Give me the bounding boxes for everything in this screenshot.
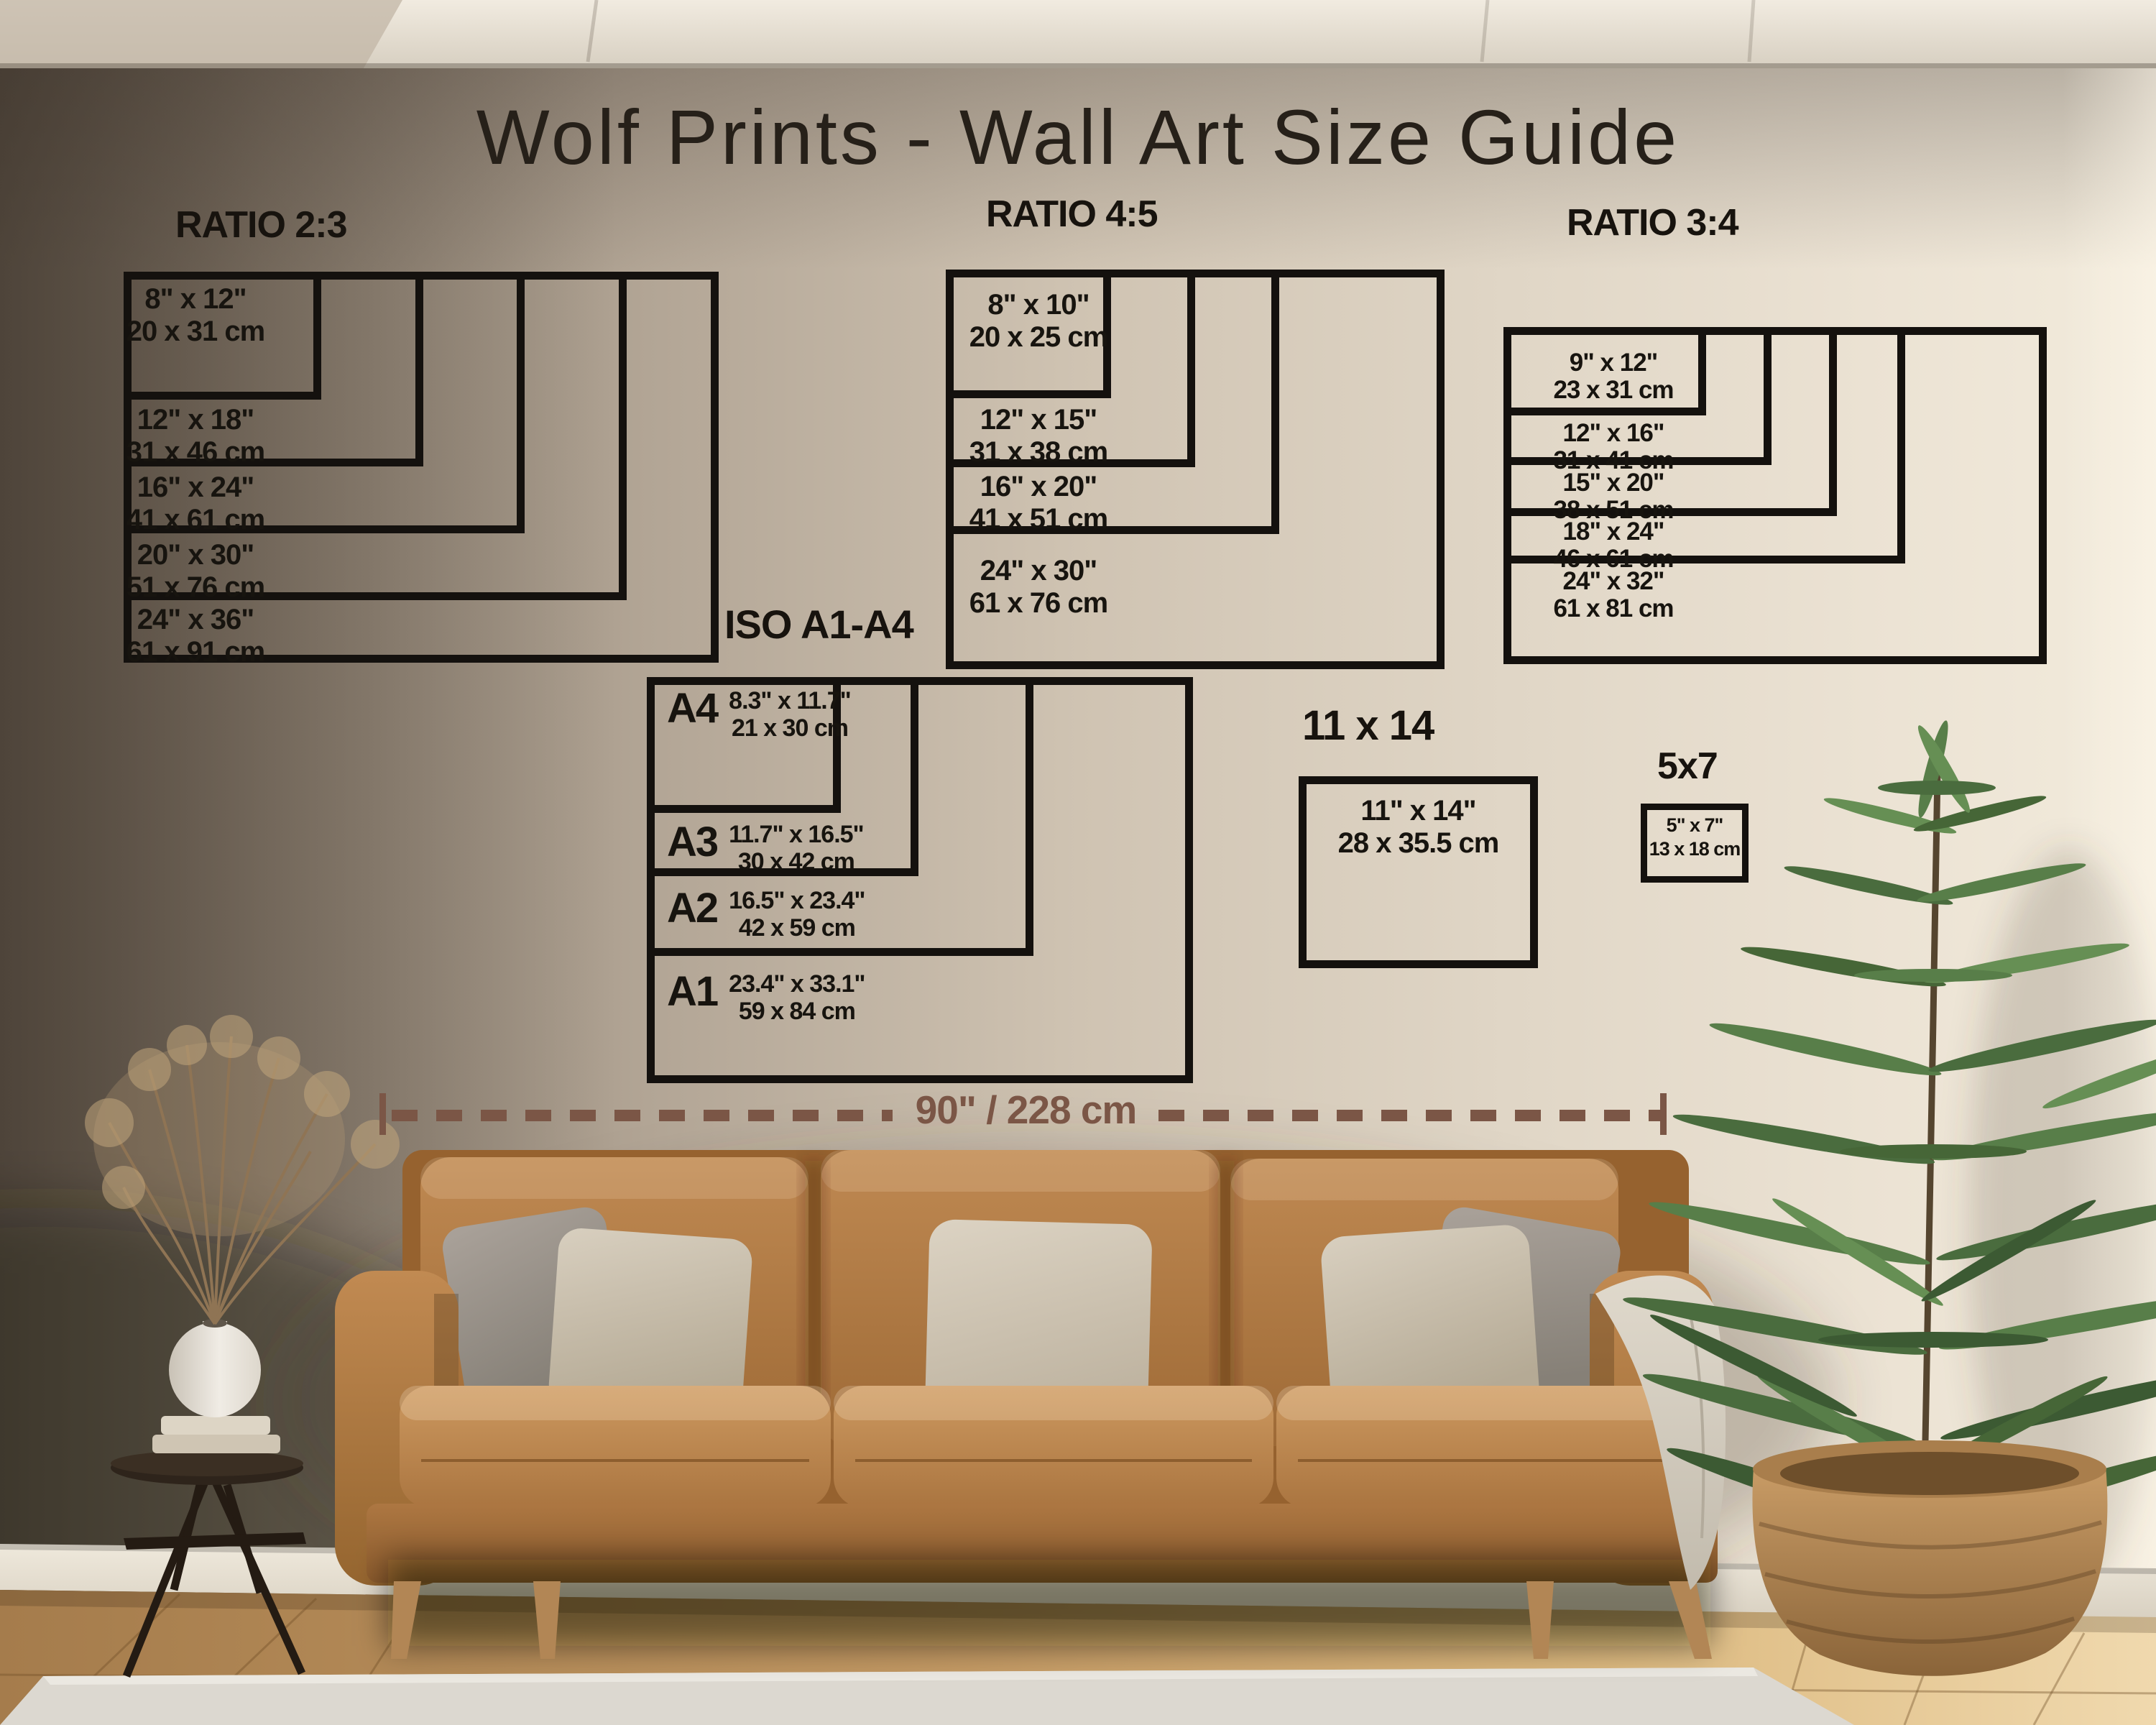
size-inches: 5" x 7": [1644, 814, 1746, 837]
iso-code: A1: [667, 970, 717, 1013]
size-inches: 11" x 14": [1307, 795, 1530, 827]
size-label-20x30: 20" x 30" 51 x 76 cm: [88, 539, 303, 604]
size-cm: 31 x 38 cm: [931, 436, 1146, 469]
size-label-11x14: 11" x 14" 28 x 35.5 cm: [1307, 795, 1530, 860]
size-inches: 15" x 20": [1506, 469, 1721, 497]
size-cm: 51 x 76 cm: [88, 571, 303, 604]
size-inches: 20" x 30": [88, 539, 303, 571]
size-cm: 59 x 84 cm: [729, 998, 865, 1025]
size-cm: 61 x 81 cm: [1506, 595, 1721, 622]
size-cm: 23 x 31 cm: [1506, 377, 1721, 404]
size-11x14-header: 11 x 14: [1302, 701, 1434, 750]
size-inches: 9" x 12": [1506, 349, 1721, 377]
size-cm: 20 x 31 cm: [88, 316, 303, 348]
size-inches: 12" x 18": [88, 404, 303, 436]
size-label-16x20: 16" x 20" 41 x 51 cm: [931, 471, 1146, 535]
seat-cushions: [400, 1386, 1697, 1508]
size-label-24x32: 24" x 32" 61 x 81 cm: [1506, 568, 1721, 622]
measure-label: 90" / 228 cm: [895, 1087, 1157, 1133]
size-inches: 16" x 24": [88, 471, 303, 504]
rug: [0, 1667, 1854, 1725]
size-inches: 16.5" x 23.4": [729, 887, 865, 914]
size-inches: 18" x 24": [1506, 518, 1721, 546]
iso-code: A4: [667, 687, 717, 730]
size-inches: 24" x 36": [88, 604, 303, 636]
size-inches: 24" x 30": [931, 555, 1146, 587]
wicker-basket: [1752, 1440, 2107, 1676]
leather-couch: [335, 1150, 1726, 1659]
size-5x7-header: 5x7: [1657, 745, 1718, 788]
size-inches: 12" x 16": [1506, 420, 1721, 447]
size-cm: 21 x 30 cm: [729, 714, 851, 742]
size-label-8x12: 8" x 12" 20 x 31 cm: [88, 283, 303, 348]
size-label-16x24: 16" x 24" 41 x 61 cm: [88, 471, 303, 536]
size-inches: 23.4" x 33.1": [729, 970, 865, 998]
size-inches: 11.7" x 16.5": [729, 821, 864, 848]
iso-header: ISO A1-A4: [724, 601, 913, 648]
size-label-24x36: 24" x 36" 61 x 91 cm: [88, 604, 303, 668]
iso-label-a2: A2 16.5" x 23.4" 42 x 59 cm: [667, 887, 865, 942]
size-label-9x12: 9" x 12" 23 x 31 cm: [1506, 349, 1721, 404]
iso-label-a4: A4 8.3" x 11.7" 21 x 30 cm: [667, 687, 851, 742]
ratio-2-3-header: RATIO 2:3: [175, 203, 347, 247]
size-inches: 12" x 15": [931, 404, 1146, 436]
size-cm: 31 x 46 cm: [88, 436, 303, 469]
size-label-5x7: 5" x 7" 13 x 18 cm: [1644, 814, 1746, 861]
size-label-12x18: 12" x 18" 31 x 46 cm: [88, 404, 303, 469]
size-label-15x20: 15" x 20" 38 x 51 cm: [1506, 469, 1721, 524]
size-inches: 8" x 12": [88, 283, 303, 316]
size-label-12x15: 12" x 15" 31 x 38 cm: [931, 404, 1146, 469]
size-inches: 8" x 10": [931, 289, 1146, 321]
measure-cap-left: [379, 1093, 386, 1135]
size-label-12x16: 12" x 16" 31 x 41 cm: [1506, 420, 1721, 474]
size-inches: 8.3" x 11.7": [729, 687, 851, 714]
measure-dashes-right: [1158, 1110, 1660, 1121]
measure-cap-right: [1660, 1093, 1667, 1135]
size-inches: 16" x 20": [931, 471, 1146, 503]
size-cm: 41 x 61 cm: [88, 504, 303, 536]
size-label-8x10: 8" x 10" 20 x 25 cm: [931, 289, 1146, 354]
iso-label-a3: A3 11.7" x 16.5" 30 x 42 cm: [667, 821, 864, 875]
iso-label-a1: A1 23.4" x 33.1" 59 x 84 cm: [667, 970, 865, 1025]
iso-code: A2: [667, 887, 717, 930]
size-cm: 61 x 76 cm: [931, 587, 1146, 620]
size-inches: 24" x 32": [1506, 568, 1721, 595]
size-cm: 20 x 25 cm: [931, 321, 1146, 354]
size-cm: 13 x 18 cm: [1644, 837, 1746, 861]
iso-code: A3: [667, 821, 717, 864]
size-label-24x30: 24" x 30" 61 x 76 cm: [931, 555, 1146, 620]
ratio-4-5-header: RATIO 4:5: [986, 193, 1158, 236]
size-cm: 42 x 59 cm: [729, 914, 865, 942]
ratio-3-4-header: RATIO 3:4: [1567, 201, 1738, 244]
size-cm: 41 x 51 cm: [931, 503, 1146, 535]
size-cm: 61 x 91 cm: [88, 636, 303, 668]
measure-dashes-left: [392, 1110, 893, 1121]
size-cm: 30 x 42 cm: [729, 848, 864, 875]
size-cm: 28 x 35.5 cm: [1307, 827, 1530, 860]
size-label-18x24: 18" x 24" 46 x 61 cm: [1506, 518, 1721, 573]
page-title: Wolf Prints - Wall Art Size Guide: [0, 92, 2156, 182]
